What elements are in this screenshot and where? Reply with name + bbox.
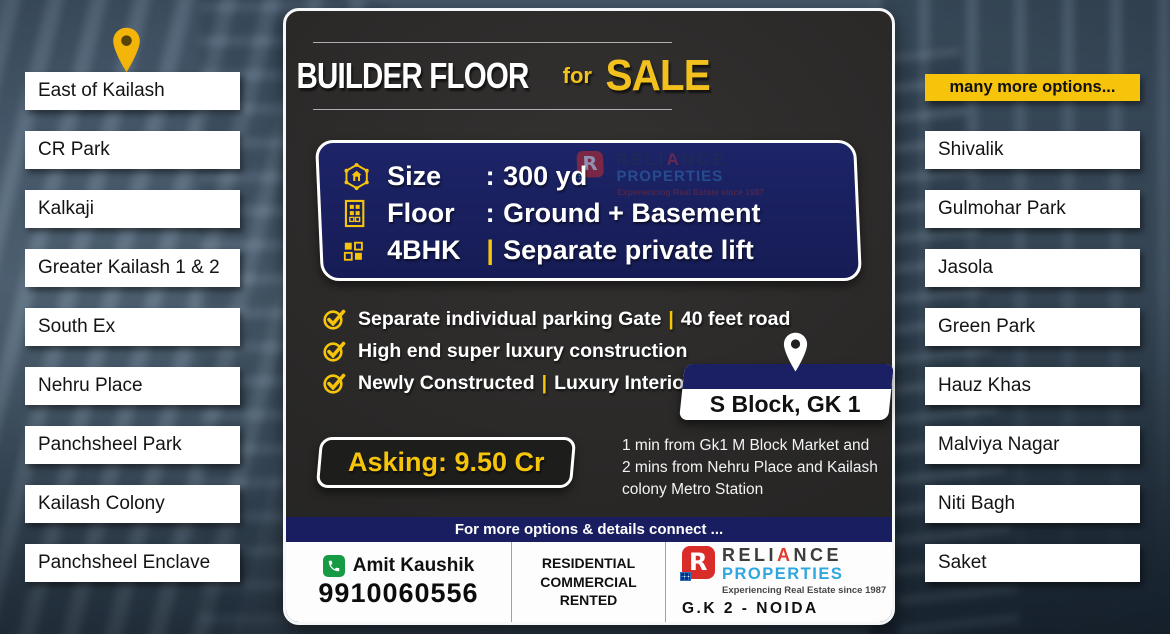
headline-main: BUILDER FLOOR [296, 55, 528, 97]
feature-text: Separate individual parking Gate [358, 308, 661, 330]
category-label: RESIDENTIAL [542, 554, 635, 572]
rooms-grid-icon [341, 235, 375, 266]
check-icon [322, 339, 346, 363]
location-item: CR Park [25, 131, 240, 169]
location-label: Gulmohar Park [938, 198, 1066, 219]
contact-column: Amit Kaushik 9910060556 [286, 542, 511, 622]
asking-price-box: Asking: 9.50 Cr [316, 437, 576, 488]
brand-name: RELIANCE [722, 546, 886, 565]
white-map-pin-icon [782, 330, 809, 376]
location-label: CR Park [38, 139, 110, 160]
location-item: Kalkaji [25, 190, 240, 228]
brand-office: G.K 2 - NOIDA [682, 600, 892, 618]
location-badge-label: S Block, GK 1 [681, 389, 890, 420]
spec-separator: : [477, 198, 503, 229]
check-icon [322, 307, 346, 331]
more-options-badge: many more options... [925, 74, 1140, 101]
spec-label: Size [387, 161, 477, 192]
category-label: COMMERCIAL [540, 573, 636, 591]
brand-sub: PROPERTIES [722, 565, 886, 584]
location-item: Green Park [925, 308, 1140, 346]
headline-highlight: SALE [606, 51, 710, 101]
location-label: Saket [938, 552, 987, 573]
reliance-logo-icon: R [682, 546, 715, 579]
location-label: Panchsheel Park [38, 434, 182, 455]
feature-item: High end super luxury construction [322, 339, 790, 363]
builder-floor-poster: East of Kailash CR Park Kalkaji Greater … [0, 0, 1170, 634]
location-item: East of Kailash [25, 72, 240, 110]
feature-text: 40 feet road [681, 308, 790, 330]
location-item: Jasola [925, 249, 1140, 287]
connect-bar: For more options & details connect ... [286, 517, 892, 542]
location-item: Malviya Nagar [925, 426, 1140, 464]
agent-phone: 9910060556 [318, 578, 478, 609]
location-label: Jasola [938, 257, 993, 278]
location-label: Panchsheel Enclave [38, 552, 210, 573]
building-floors-icon [341, 198, 375, 229]
hexagon-house-icon [341, 161, 375, 192]
spec-value: Ground + Basement [503, 198, 760, 229]
feature-text: Luxury Interiors [554, 372, 702, 394]
spec-row-floor: Floor : Ground + Basement [341, 195, 856, 232]
location-item: Panchsheel Enclave [25, 544, 240, 582]
spec-value: 300 yd [503, 161, 587, 192]
check-icon [322, 371, 346, 395]
location-label: Niti Bagh [938, 493, 1015, 514]
location-item: Panchsheel Park [25, 426, 240, 464]
spec-row-size: Size : 300 yd [341, 158, 856, 195]
spec-separator: : [477, 161, 503, 192]
distance-note: 1 min from Gk1 M Block Market and 2 mins… [622, 435, 880, 501]
asking-price-label: Asking: 9.50 Cr [348, 447, 545, 478]
phone-icon [323, 555, 345, 577]
flyer-card: BUILDER FLOOR for SALE R RELIANCE PROPER… [283, 8, 895, 625]
location-label: Kalkaji [38, 198, 94, 219]
spec-label: 4BHK [387, 235, 477, 266]
feature-item: Separate individual parking Gate|40 feet… [322, 307, 790, 331]
location-item: Greater Kailash 1 & 2 [25, 249, 240, 287]
location-label: Malviya Nagar [938, 434, 1059, 455]
gold-map-pin-icon [111, 26, 142, 76]
headline: BUILDER FLOOR for SALE [313, 42, 672, 110]
feature-text: Newly Constructed [358, 372, 535, 394]
location-label: East of Kailash [38, 80, 165, 101]
spec-separator: | [477, 235, 503, 266]
location-item: South Ex [25, 308, 240, 346]
location-item: Saket [925, 544, 1140, 582]
feature-text: High end super luxury construction [358, 340, 687, 362]
location-item: Gulmohar Park [925, 190, 1140, 228]
contact-footer: Amit Kaushik 9910060556 RESIDENTIAL COMM… [286, 542, 892, 622]
location-item: Niti Bagh [925, 485, 1140, 523]
location-label: Nehru Place [38, 375, 143, 396]
location-item: Hauz Khas [925, 367, 1140, 405]
location-item: Nehru Place [25, 367, 240, 405]
property-specs-box: R RELIANCE PROPERTIES Experiencing Real … [315, 140, 862, 281]
spec-label: Floor [387, 198, 477, 229]
location-label: Greater Kailash 1 & 2 [38, 257, 220, 278]
location-label: South Ex [38, 316, 115, 337]
brand-column: R RELIANCE PROPERTIES Experiencing Real … [666, 542, 892, 622]
location-label: Hauz Khas [938, 375, 1031, 396]
feature-pipe: | [668, 308, 673, 330]
location-item: Kailash Colony [25, 485, 240, 523]
spec-row-bhk: 4BHK | Separate private lift [341, 232, 856, 269]
spec-value: Separate private lift [503, 235, 754, 266]
agent-name: Amit Kaushik [353, 555, 474, 577]
feature-pipe: | [542, 372, 547, 394]
category-label: RENTED [560, 591, 618, 609]
location-label: Kailash Colony [38, 493, 165, 514]
headline-connector: for [563, 63, 592, 89]
location-label: Shivalik [938, 139, 1003, 160]
categories-column: RESIDENTIAL COMMERCIAL RENTED [511, 542, 666, 622]
location-label: Green Park [938, 316, 1035, 337]
location-item: Shivalik [925, 131, 1140, 169]
brand-tagline: Experiencing Real Estate since 1987 [722, 585, 886, 596]
